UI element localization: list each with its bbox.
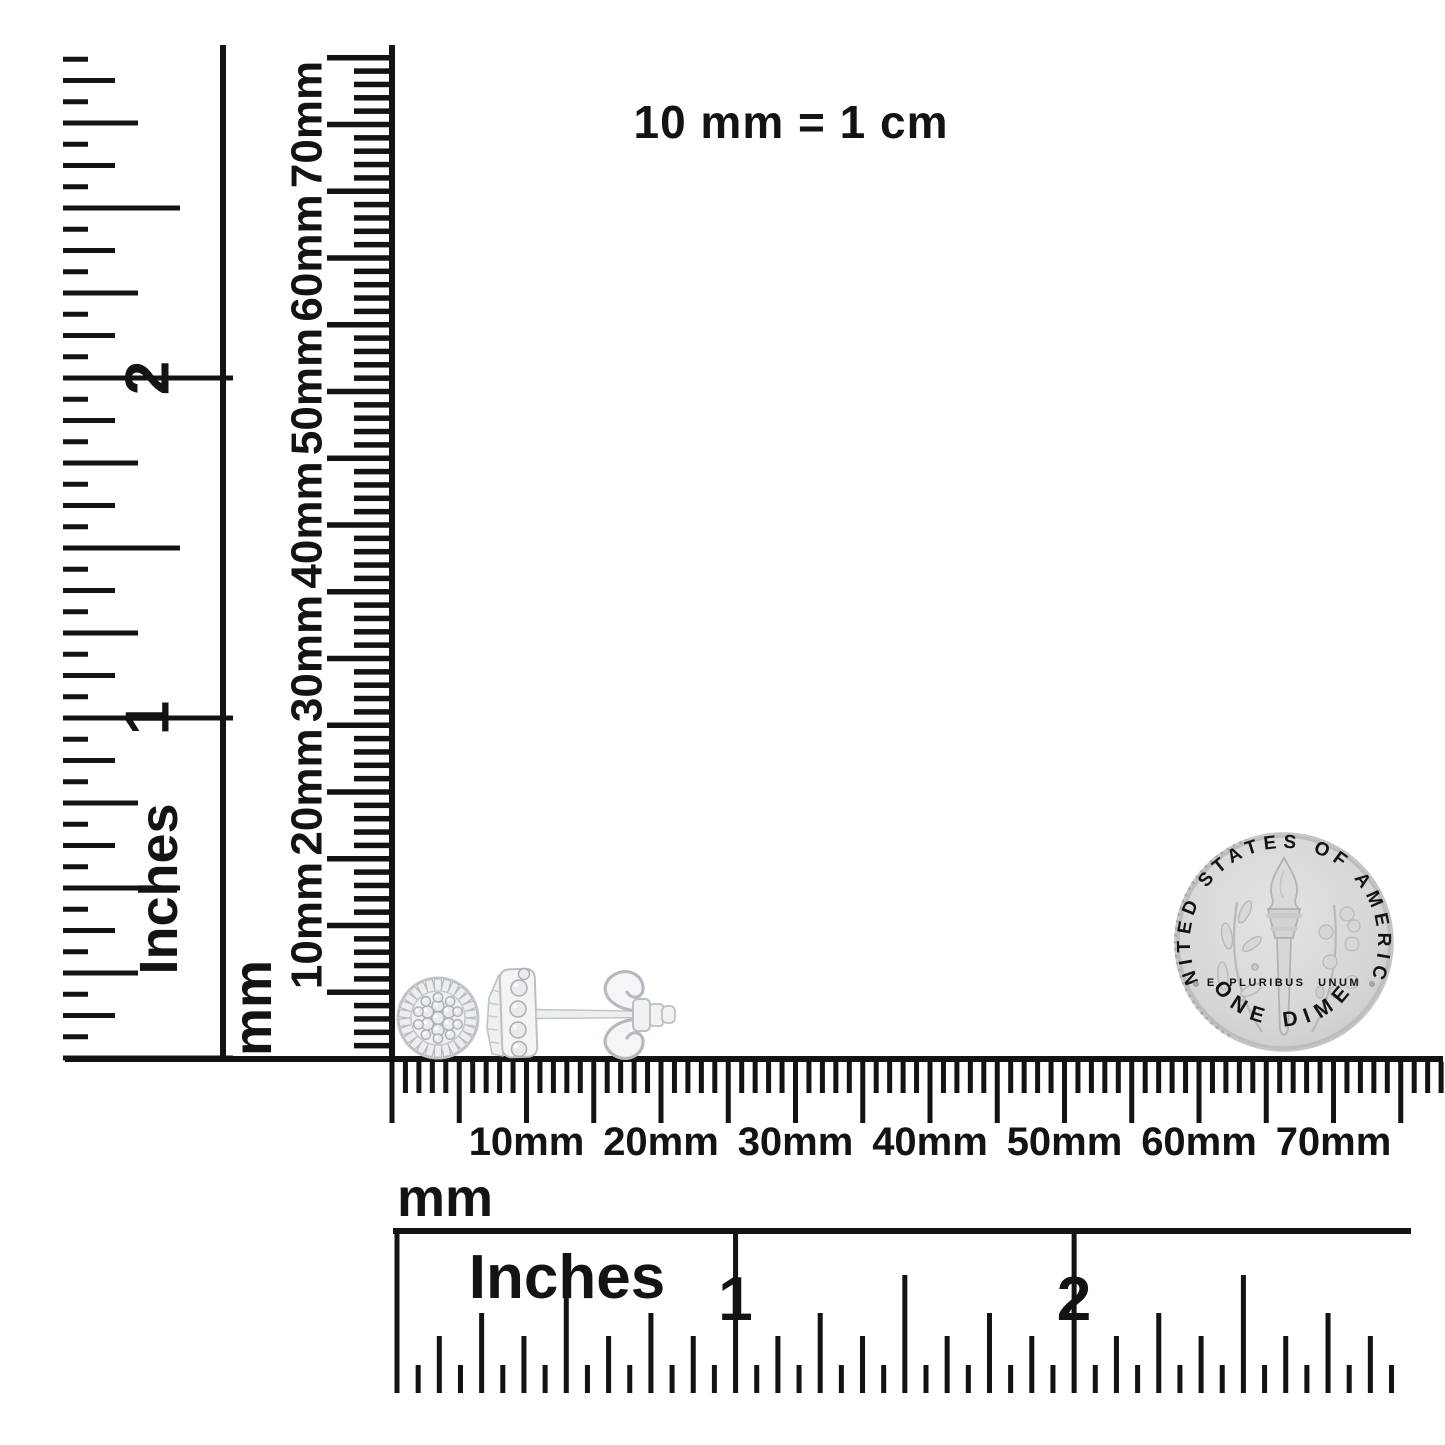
- bottom-mm-ruler-unit-label: mm: [397, 1168, 493, 1228]
- bottom-inch-ruler-number-2: 2: [1057, 1265, 1091, 1334]
- bottom-inch-ruler: 12Inches: [393, 1228, 1411, 1393]
- bottom-mm-ruler-label-40mm: 40mm: [872, 1120, 988, 1164]
- bottom-inch-ruler-unit-label: Inches: [469, 1243, 665, 1312]
- left-inch-ruler-number-2: 2: [114, 361, 183, 395]
- size-chart-canvas: 21Inches70mm60mm50mm40mm30mm20mm10mmmm10…: [0, 0, 1445, 1445]
- bottom-mm-ruler-label-70mm: 70mm: [1276, 1120, 1392, 1164]
- left-inch-ruler-unit-label: Inches: [129, 803, 189, 974]
- bottom-mm-ruler-label-60mm: 60mm: [1141, 1120, 1257, 1164]
- left-mm-ruler-label-10mm: 10mm: [282, 862, 331, 989]
- stud-front-view: [398, 978, 479, 1059]
- left-mm-ruler-label-50mm: 50mm: [282, 328, 331, 455]
- bottom-inch-ruler-number-1: 1: [718, 1265, 752, 1334]
- left-mm-ruler: 70mm60mm50mm40mm30mm20mm10mmmm: [223, 45, 395, 1062]
- left-mm-ruler-label-40mm: 40mm: [282, 461, 331, 588]
- left-inch-ruler-number-1: 1: [114, 701, 183, 735]
- left-mm-ruler-unit-label: mm: [223, 960, 283, 1056]
- diamond-stud-earrings-photo: [398, 968, 676, 1058]
- left-inch-ruler-spine: [220, 45, 226, 1061]
- left-inch-ruler: 21Inches: [63, 45, 233, 1061]
- left-mm-ruler-label-20mm: 20mm: [282, 728, 331, 855]
- left-mm-ruler-label-30mm: 30mm: [282, 595, 331, 722]
- dime-coin: UNITED STATES OF AMERICA ONE DIME E PLUR…: [0, 0, 1394, 1051]
- bottom-mm-ruler: 10mm20mm30mm40mm50mm60mm70mmmm: [65, 1056, 1444, 1228]
- bottom-mm-ruler-spine: [65, 1056, 1443, 1062]
- left-mm-ruler-label-60mm: 60mm: [282, 194, 331, 321]
- bottom-mm-ruler-label-30mm: 30mm: [738, 1120, 854, 1164]
- coin-motto-text: E PLURIBUS UNUM: [1207, 977, 1361, 989]
- bottom-mm-ruler-label-10mm: 10mm: [469, 1120, 585, 1164]
- bottom-mm-ruler-ticks: [390, 1062, 1444, 1123]
- bottom-mm-ruler-label-20mm: 20mm: [603, 1120, 719, 1164]
- left-mm-ruler-label-70mm: 70mm: [282, 61, 331, 188]
- bottom-inch-ruler-spine: [393, 1228, 1411, 1234]
- stud-side-view: [487, 968, 675, 1058]
- coin-left-dot: [1193, 981, 1199, 987]
- bottom-mm-ruler-label-50mm: 50mm: [1007, 1120, 1123, 1164]
- coin-right-dot: [1369, 981, 1375, 987]
- jewelry-size-chart: 10 mm = 1 cm 21Inches70mm60mm50mm40mm30m…: [0, 0, 1445, 1445]
- coin-top-text: UNITED STATES OF AMERICA: [0, 0, 1394, 988]
- rulers: 21Inches70mm60mm50mm40mm30mm20mm10mmmm10…: [63, 45, 1444, 1393]
- left-mm-ruler-ticks: [327, 55, 390, 1062]
